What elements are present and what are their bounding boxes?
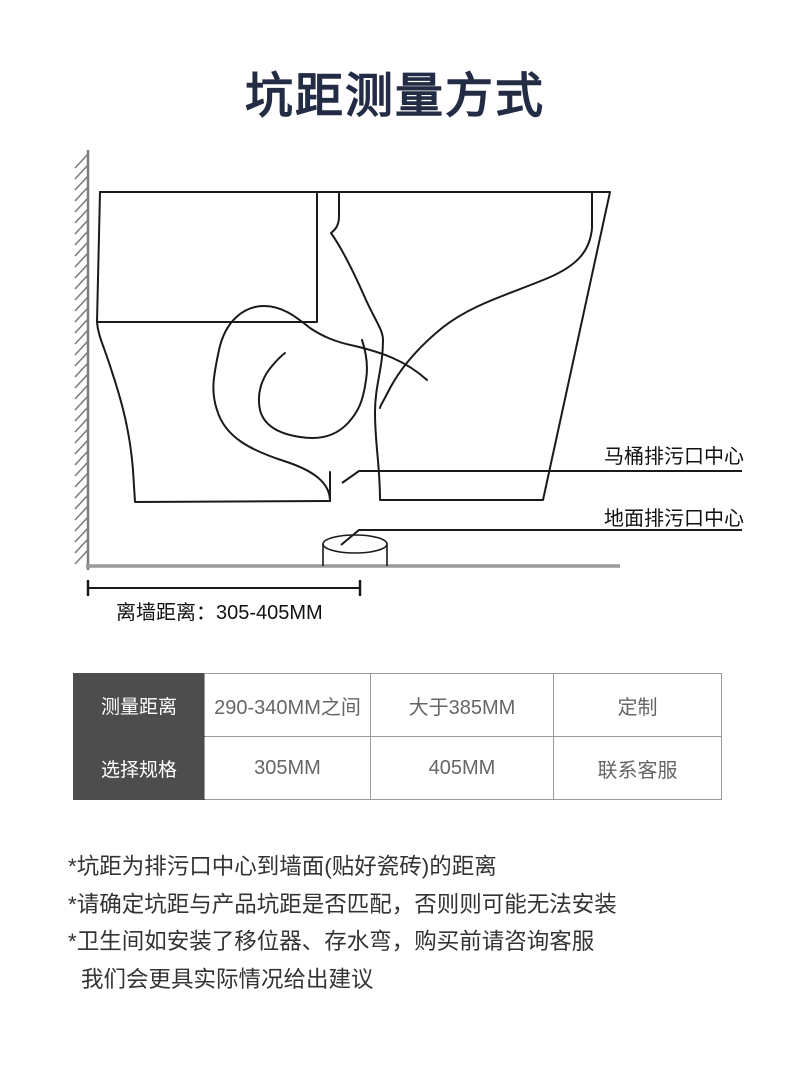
toilet-cross-section-diagram (0, 140, 790, 630)
table-row: 选择规格 305MM 405MM 联系客服 (74, 737, 722, 800)
label-floor-outlet-center: 地面排污口中心 (600, 502, 744, 531)
note-line: 我们会更具实际情况给出建议 (68, 961, 617, 999)
leader-line-floor-outlet (341, 530, 742, 545)
table-cell: 定制 (554, 674, 722, 737)
footnotes: *坑距为排污口中心到墙面(贴好瓷砖)的距离 *请确定坑距与产品坑距是否匹配，否则… (68, 848, 617, 998)
table-cell: 305MM (205, 737, 371, 800)
floor-drain-pipe (323, 535, 387, 566)
table-cell: 大于385MM (371, 674, 554, 737)
row-header-measure-distance: 测量距离 (74, 674, 205, 737)
note-line: *请确定坑距与产品坑距是否匹配，否则则可能无法安装 (68, 886, 617, 924)
wall-hatching-pattern (75, 154, 88, 564)
pit-distance-spec-table: 测量距离 290-340MM之间 大于385MM 定制 选择规格 305MM 4… (73, 673, 722, 800)
product-info-page: 坑距测量方式 (0, 0, 790, 1074)
table-row: 测量距离 290-340MM之间 大于385MM 定制 (74, 674, 722, 737)
note-line: *坑距为排污口中心到墙面(贴好瓷砖)的距离 (68, 848, 617, 886)
leader-line-toilet-outlet (342, 471, 742, 483)
row-header-select-spec: 选择规格 (74, 737, 205, 800)
table-cell: 405MM (371, 737, 554, 800)
table-cell: 联系客服 (554, 737, 722, 800)
table-cell: 290-340MM之间 (205, 674, 371, 737)
toilet-outline (97, 192, 610, 502)
page-title: 坑距测量方式 (0, 56, 790, 126)
dimension-line (88, 580, 360, 596)
label-toilet-outlet-center: 马桶排污口中心 (600, 440, 744, 469)
label-wall-distance: 离墙距离：305-405MM (116, 596, 323, 625)
note-line: *卫生间如安装了移位器、存水弯，购买前请咨询客服 (68, 923, 617, 961)
